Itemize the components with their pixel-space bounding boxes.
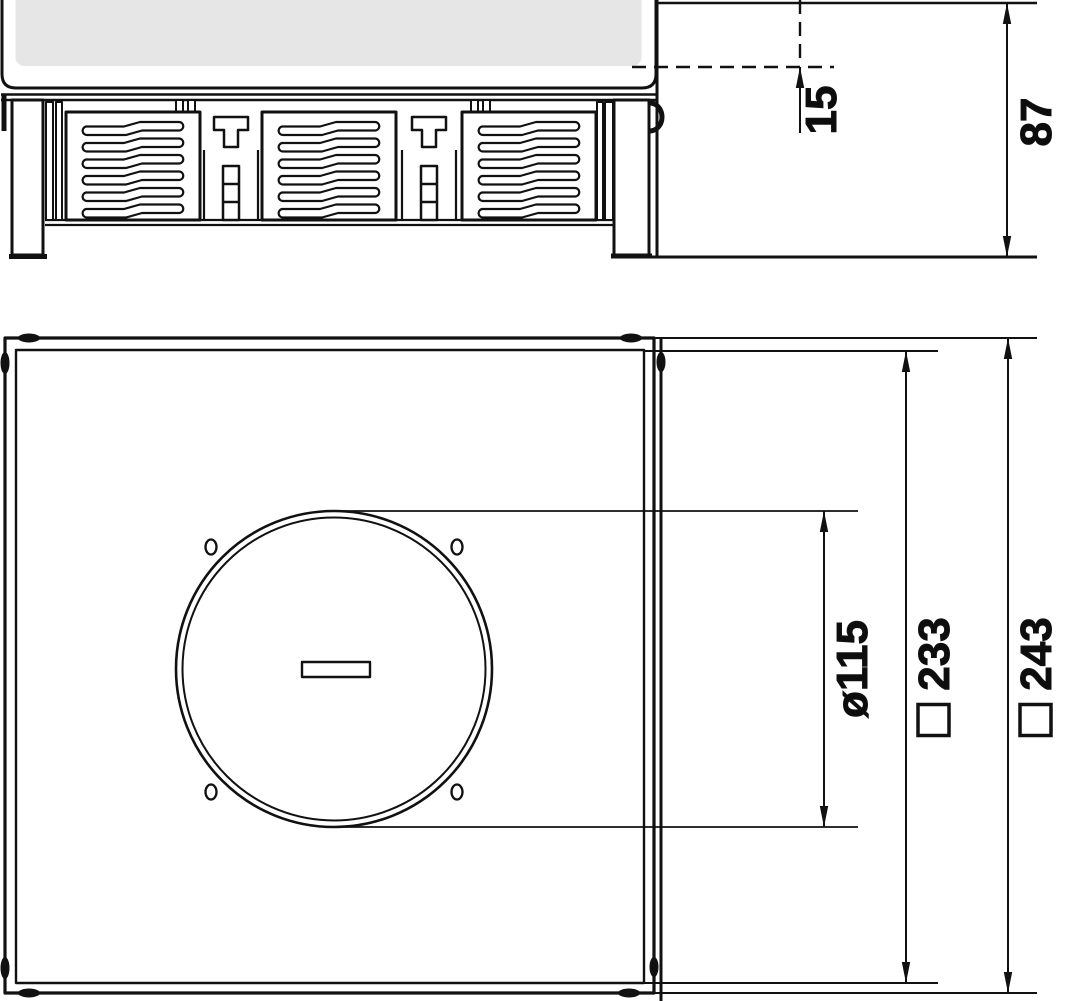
dim-label-recess-depth: 15 <box>797 86 846 135</box>
dim-label-frame-square: 243 <box>1012 617 1061 690</box>
lid-lift-slot <box>302 662 370 677</box>
arrow-243-up <box>1004 338 1012 359</box>
corner-clips <box>1 334 666 998</box>
vent-panel-left <box>66 112 200 220</box>
left-column-a <box>46 102 53 220</box>
dim-label-cover-square: 233 <box>910 617 959 690</box>
plan-view-dimensions: ø115 233 243 <box>334 338 1061 993</box>
side-view <box>1 0 662 257</box>
left-column-b <box>56 102 62 220</box>
t-cutout-2 <box>412 117 446 147</box>
strut-cells-2 <box>421 166 437 220</box>
arrow-233-down <box>902 962 910 983</box>
t-cutout-1 <box>214 117 248 147</box>
lid-inner-surface <box>16 0 642 66</box>
drawing-canvas: 15 87 <box>0 0 1080 1001</box>
side-view-dimensions: 15 87 <box>611 0 1061 257</box>
arrow-15-up <box>796 67 804 88</box>
vent-panel-right <box>462 112 596 220</box>
strut-cells-1 <box>223 166 239 220</box>
arrow-233-up <box>902 351 910 372</box>
plan-view <box>1 334 666 1001</box>
frame-outer-square <box>5 338 654 993</box>
round-lid-inner <box>183 518 486 821</box>
round-lid-outer <box>176 511 492 827</box>
dim-label-overall-height: 87 <box>1012 98 1061 147</box>
arrow-115-up <box>820 511 828 532</box>
right-column-a <box>597 102 603 220</box>
screw-hole-br <box>452 785 463 800</box>
vent-panel-middle <box>262 112 396 220</box>
technical-drawing: 15 87 <box>0 0 1080 1001</box>
screw-hole-bl <box>206 785 217 800</box>
square-symbol-233 <box>918 705 949 736</box>
arrow-87-up <box>1003 3 1011 24</box>
square-symbol-243 <box>1020 705 1051 736</box>
arrow-243-down <box>1004 972 1012 993</box>
screw-hole-tl <box>206 540 217 555</box>
arrow-115-down <box>820 806 828 827</box>
right-leg <box>614 100 649 255</box>
right-column-b <box>605 102 613 220</box>
arrow-87-down <box>1003 236 1011 257</box>
left-leg <box>12 100 43 255</box>
screw-hole-tr <box>452 540 463 555</box>
cover-inner-square <box>16 350 644 983</box>
dim-label-lid-diameter: ø115 <box>828 620 877 718</box>
